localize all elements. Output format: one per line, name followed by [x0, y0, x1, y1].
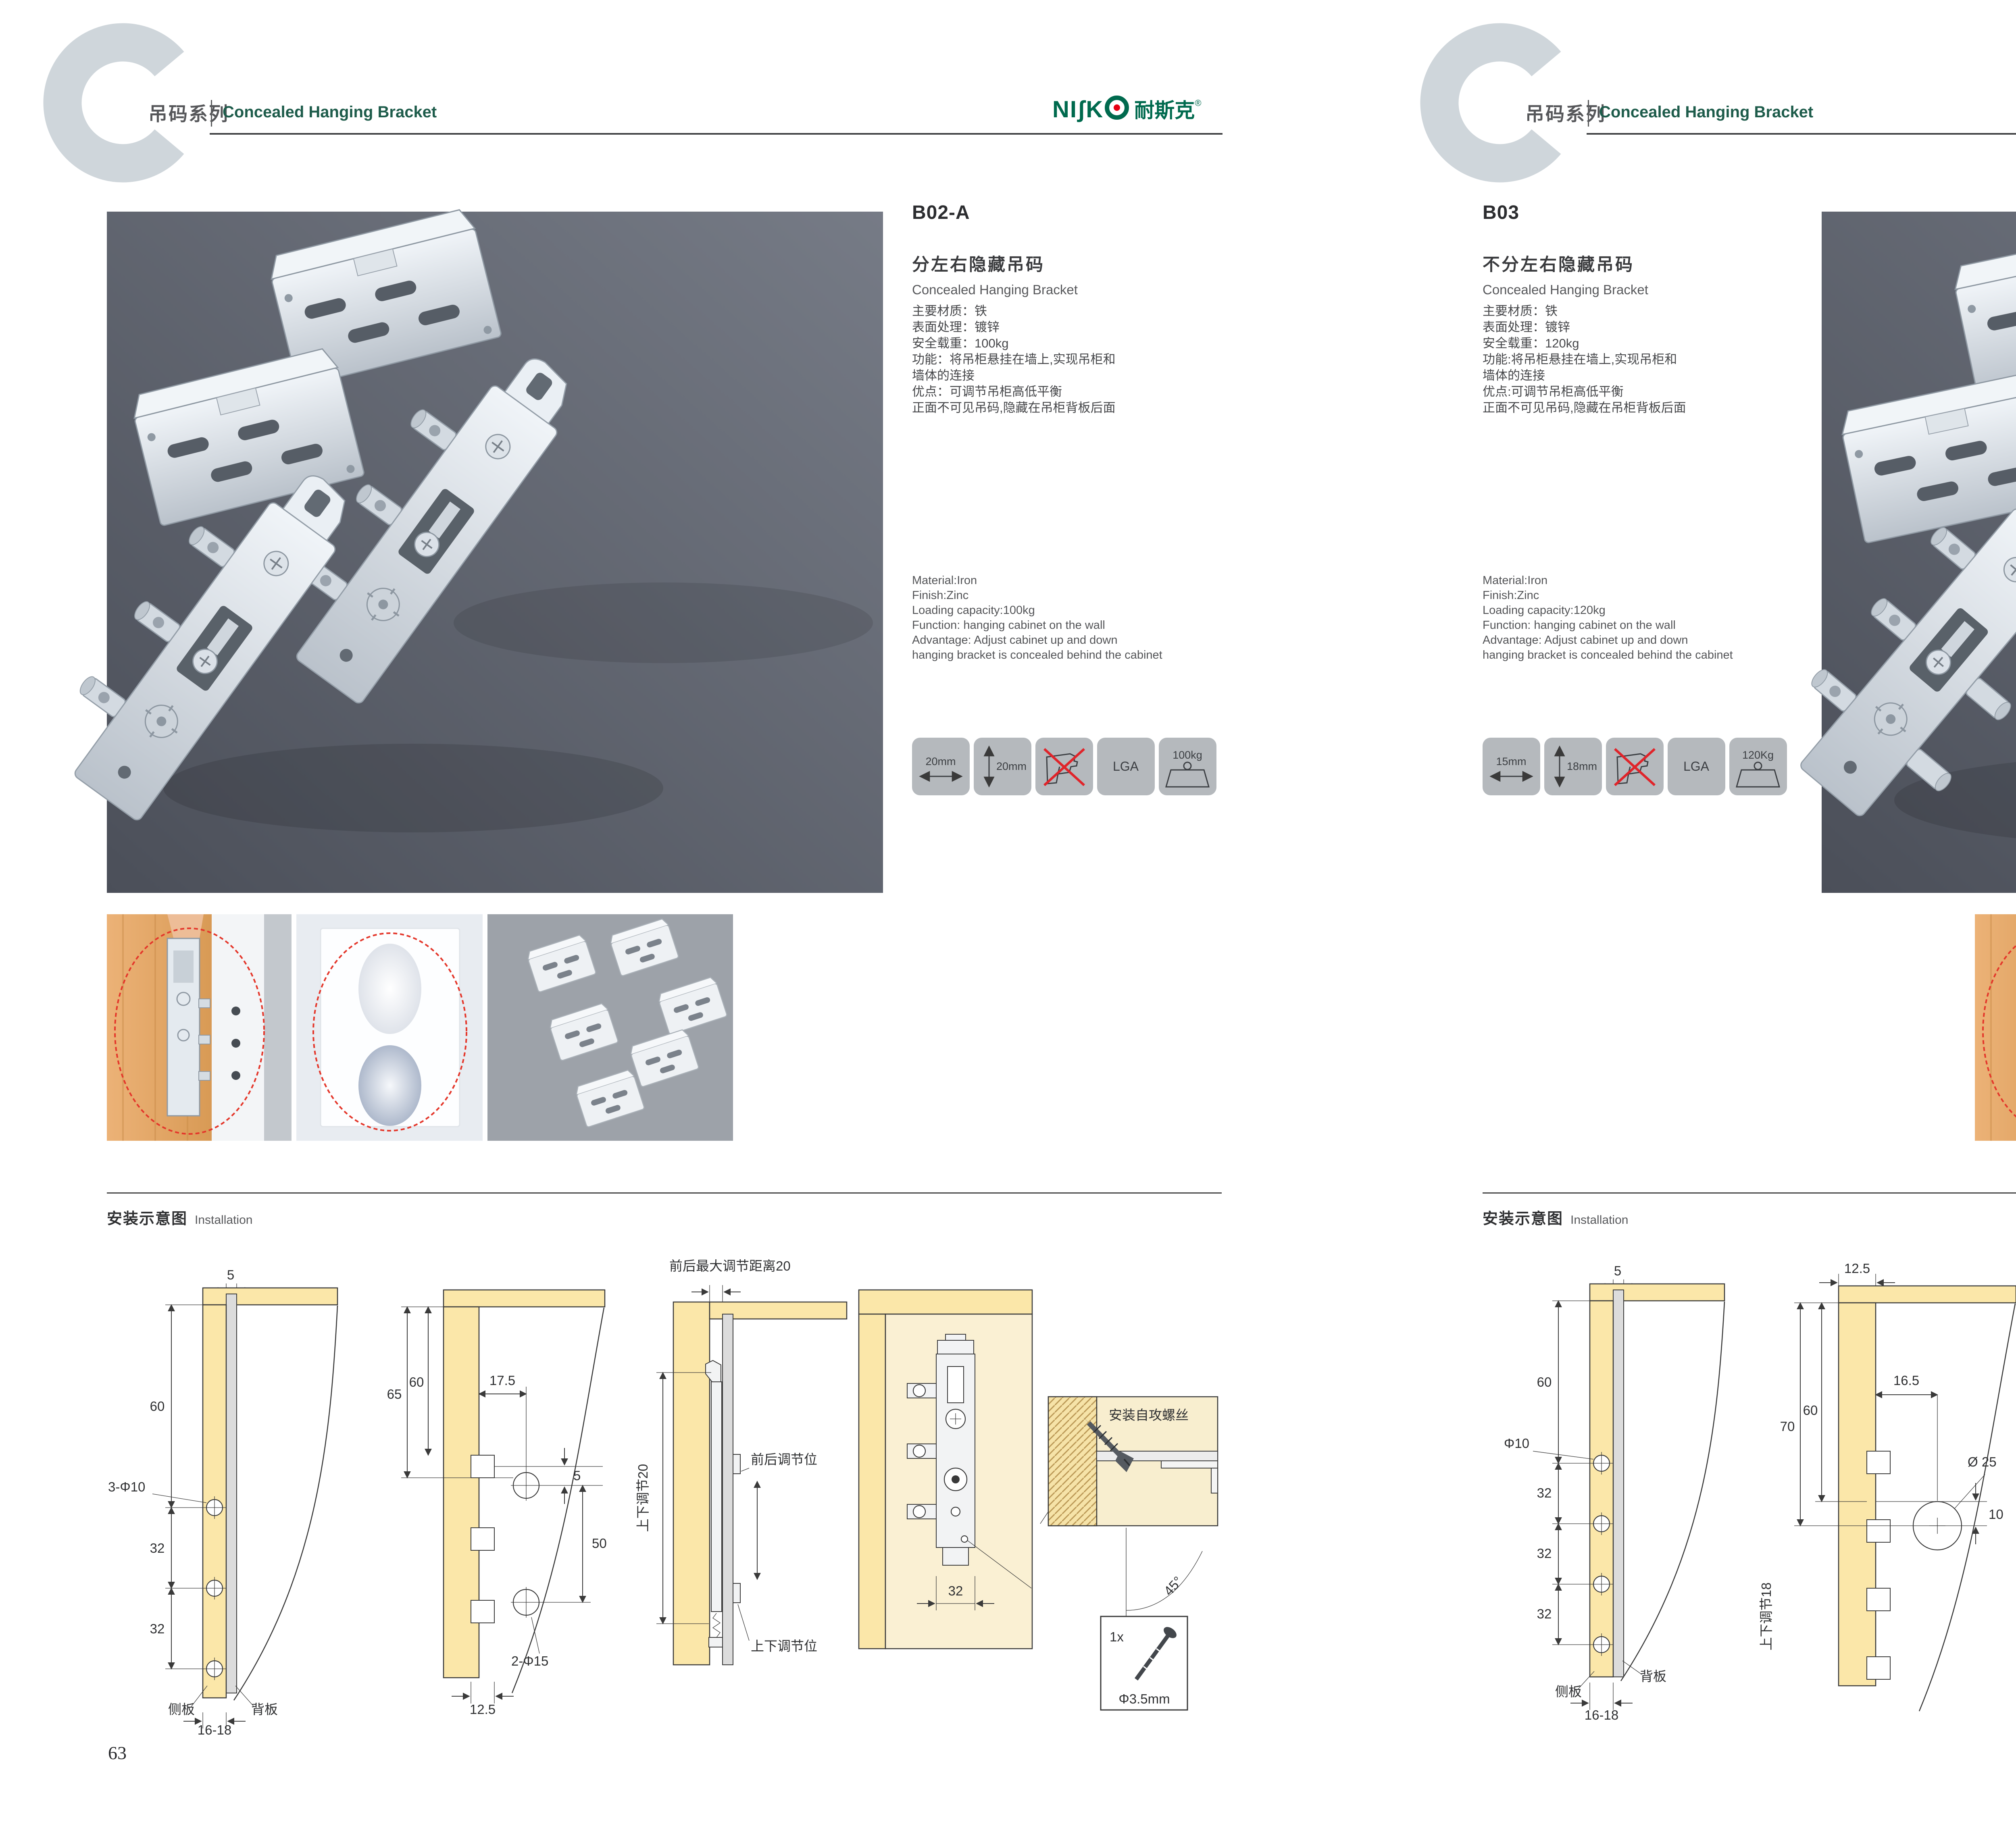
svg-text:65: 65 [387, 1387, 402, 1402]
series-title-en: Concealed Hanging Bracket [223, 103, 437, 121]
spec-line: 正面不可见吊码,隐藏在吊柜背板后面 [1483, 400, 1686, 416]
spec-line: hanging bracket is concealed behind the … [912, 648, 1162, 663]
header-rule [210, 133, 1223, 135]
spec-line: 安全载重：120kg [1483, 335, 1686, 352]
install-title: 安装示意图Installation [1483, 1206, 1628, 1228]
no-drill-icon [1606, 738, 1664, 795]
svg-text:侧板: 侧板 [168, 1702, 195, 1717]
load-capacity-icon: 120Kg [1729, 738, 1787, 795]
spec-line: 正面不可见吊码,隐藏在吊柜背板后面 [912, 400, 1116, 416]
install-title-en: Installation [195, 1213, 252, 1227]
spec-icons-row: 20mm 20mm LGA 100kg [912, 738, 1216, 795]
load-capacity-icon: 100kg [1159, 738, 1216, 795]
svg-text:32: 32 [948, 1583, 963, 1598]
svg-text:上下调节20: 上下调节20 [635, 1464, 650, 1532]
header-divider [211, 100, 212, 127]
svg-text:32: 32 [1537, 1606, 1552, 1621]
spec-line: 主要材质：铁 [912, 303, 1116, 319]
svg-text:50: 50 [592, 1536, 607, 1551]
svg-text:32: 32 [150, 1621, 165, 1636]
spec-line: Advantage: Adjust cabinet up and down [1483, 633, 1733, 648]
brand-logo-latin: NIʃK [1052, 96, 1104, 123]
svg-text:20mm: 20mm [996, 760, 1027, 772]
svg-text:70: 70 [1780, 1419, 1795, 1434]
series-title-en: Concealed Hanging Bracket [1599, 103, 1813, 121]
spec-line: 功能：将吊柜悬挂在墙上,实现吊柜和 [912, 352, 1116, 368]
svg-text:20mm: 20mm [925, 755, 956, 768]
svg-text:前后最大调节距离20: 前后最大调节距离20 [669, 1258, 791, 1273]
svg-text:60: 60 [1803, 1403, 1818, 1418]
thumb-concealed-back [296, 914, 483, 1141]
specs-en: Material:Iron Finish:Zinc Loading capaci… [912, 573, 1162, 663]
product-title-cn: 不分左右隐藏吊码 [1483, 251, 1634, 276]
svg-text:5: 5 [227, 1267, 234, 1282]
svg-text:15mm: 15mm [1496, 755, 1526, 768]
spec-line: 表面处理：镀锌 [912, 319, 1116, 335]
svg-text:16-18: 16-18 [1585, 1708, 1618, 1722]
svg-text:10: 10 [1989, 1507, 2004, 1522]
install-rule [107, 1192, 1222, 1194]
logo-target-icon [1105, 96, 1129, 120]
spec-line: Function: hanging cabinet on the wall [1483, 618, 1733, 633]
spec-line: Advantage: Adjust cabinet up and down [912, 633, 1162, 648]
height-spec-icon: 20mm [974, 738, 1031, 795]
specs-cn: 主要材质：铁 表面处理：镀锌 安全载重：100kg 功能：将吊柜悬挂在墙上,实现… [912, 303, 1116, 416]
series-title-cn: 吊码系列 [148, 98, 229, 126]
svg-text:上下调节18: 上下调节18 [1759, 1583, 1774, 1651]
svg-text:Φ3.5mm: Φ3.5mm [1118, 1691, 1170, 1706]
spec-line: 功能:将吊柜悬挂在墙上,实现吊柜和 [1483, 352, 1686, 368]
cert-lga-icon: LGA [1668, 738, 1725, 795]
svg-text:32: 32 [150, 1541, 165, 1556]
svg-text:60: 60 [150, 1399, 165, 1414]
spec-line: Function: hanging cabinet on the wall [912, 618, 1162, 633]
svg-text:LGA: LGA [1683, 759, 1710, 774]
svg-text:安装自攻螺丝: 安装自攻螺丝 [1109, 1408, 1189, 1423]
brand-logo-cn: 耐斯克 [1134, 99, 1195, 122]
svg-text:12.5: 12.5 [1844, 1261, 1870, 1276]
page-number-left: 63 [108, 1742, 127, 1764]
brand-logo: NIʃK耐斯克® [1052, 94, 1201, 123]
cert-lga-icon: LGA [1097, 738, 1155, 795]
specs-en: Material:Iron Finish:Zinc Loading capaci… [1483, 573, 1733, 663]
spec-line: 墙体的连接 [912, 368, 1116, 384]
svg-text:背板: 背板 [251, 1702, 278, 1717]
spec-line: 安全载重：100kg [912, 335, 1116, 352]
svg-text:背板: 背板 [1640, 1669, 1666, 1684]
install-title: 安装示意图Installation [107, 1206, 252, 1228]
spec-line: Material:Iron [912, 573, 1162, 588]
svg-text:16-18: 16-18 [198, 1722, 231, 1737]
product-photo-b02a [107, 212, 883, 893]
svg-text:32: 32 [1537, 1546, 1552, 1561]
svg-text:1x: 1x [1110, 1629, 1124, 1644]
svg-text:60: 60 [409, 1375, 424, 1389]
spec-icons-row: 15mm 18mm LGA 120Kg [1483, 738, 1787, 795]
svg-text:32: 32 [1537, 1485, 1552, 1500]
svg-text:60: 60 [1537, 1375, 1552, 1389]
no-drill-icon [1035, 738, 1093, 795]
svg-text:16.5: 16.5 [1893, 1373, 1919, 1388]
svg-text:2-Φ15: 2-Φ15 [511, 1654, 548, 1668]
svg-text:5: 5 [573, 1468, 581, 1483]
diagram-back-panel-drilling: 12.5 Ø 25 70 60 10 16.5 上下调节18 [1710, 1262, 2016, 1725]
thumb-installed-bracket [1975, 914, 2016, 1141]
svg-text:上下调节位: 上下调节位 [751, 1639, 817, 1654]
spec-line: 优点：可调节吊柜高低平衡 [912, 384, 1116, 400]
diagram-back-panel-drilling: 17.5 65 60 5 50 2-Φ15 12.5 [323, 1266, 613, 1717]
svg-text:12.5: 12.5 [470, 1702, 496, 1717]
install-title-cn: 安装示意图 [107, 1211, 187, 1227]
spec-line: 墙体的连接 [1483, 368, 1686, 384]
model-code: B02-A [912, 202, 970, 224]
width-spec-icon: 15mm [1483, 738, 1540, 795]
thumb-installed-bracket [107, 914, 292, 1141]
install-title-cn: 安装示意图 [1483, 1211, 1563, 1227]
product-title-en: Concealed Hanging Bracket [912, 282, 1078, 297]
install-title-en: Installation [1570, 1213, 1628, 1227]
svg-text:17.5: 17.5 [489, 1373, 515, 1388]
spec-line: Finish:Zinc [912, 588, 1162, 603]
height-spec-icon: 18mm [1544, 738, 1602, 795]
svg-text:LGA: LGA [1113, 759, 1139, 774]
diagram-bracket-front-view: 32 [847, 1270, 1032, 1677]
product-title-en: Concealed Hanging Bracket [1483, 282, 1648, 297]
svg-text:120Kg: 120Kg [1742, 749, 1774, 761]
spec-line: Material:Iron [1483, 573, 1733, 588]
product-photo-b03 [1822, 212, 2016, 893]
product-title-cn: 分左右隐藏吊码 [912, 251, 1045, 276]
series-title-cn: 吊码系列 [1525, 98, 1606, 126]
thumb-wall-plates [487, 914, 733, 1141]
svg-text:3-Φ10: 3-Φ10 [108, 1479, 145, 1494]
install-rule [1483, 1192, 2016, 1194]
diagram-side-panel-drilling: 5 60 32 32 3-Φ10 侧板 背板 16-18 [101, 1266, 343, 1735]
diagram-screw-detail-inset: 安装自攻螺丝 45° 1x Φ3.5mm [1040, 1391, 1226, 1713]
registered-mark: ® [1195, 98, 1201, 108]
svg-text:100kg: 100kg [1173, 749, 1202, 761]
spec-line: Finish:Zinc [1483, 588, 1733, 603]
specs-cn: 主要材质：铁 表面处理：镀锌 安全载重：120kg 功能:将吊柜悬挂在墙上,实现… [1483, 303, 1686, 416]
spec-line: Loading capacity:120kg [1483, 603, 1733, 618]
spec-line: 表面处理：镀锌 [1483, 319, 1686, 335]
spec-line: 优点:可调节吊柜高低平衡 [1483, 384, 1686, 400]
diagram-side-panel-drilling: 5 60 32 32 32 Φ10 侧板 背板 16-18 [1488, 1262, 1730, 1721]
model-code: B03 [1483, 202, 1519, 224]
svg-text:Ø 25: Ø 25 [1968, 1454, 1997, 1469]
header-divider [1588, 100, 1589, 127]
spec-line: hanging bracket is concealed behind the … [1483, 648, 1733, 663]
spec-line: Loading capacity:100kg [912, 603, 1162, 618]
svg-text:侧板: 侧板 [1555, 1684, 1582, 1699]
svg-text:Φ10: Φ10 [1504, 1436, 1529, 1451]
svg-text:18mm: 18mm [1567, 760, 1597, 772]
svg-text:前后调节位: 前后调节位 [751, 1452, 817, 1467]
catalog-spread: 吊码系列 Concealed Hanging Bracket NIʃK耐斯克® … [0, 0, 2016, 1847]
spec-line: 主要材质：铁 [1483, 303, 1686, 319]
width-spec-icon: 20mm [912, 738, 970, 795]
svg-text:5: 5 [1614, 1263, 1621, 1278]
header-rule [1587, 133, 2016, 135]
svg-text:45°: 45° [1161, 1573, 1185, 1598]
